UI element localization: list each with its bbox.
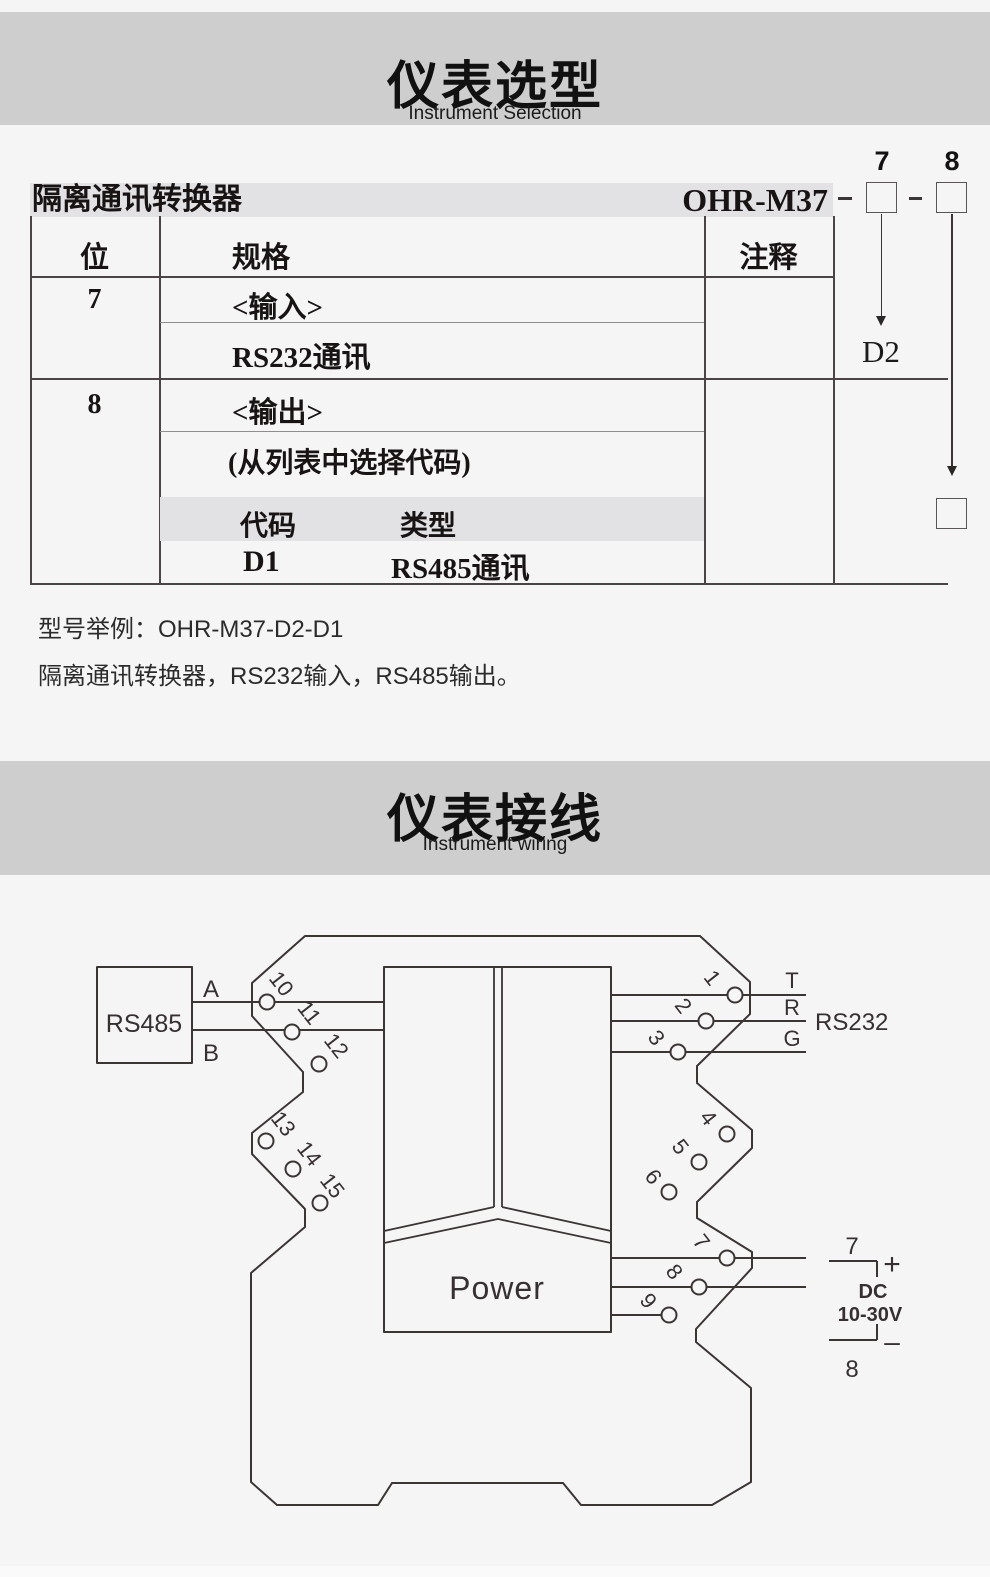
supply-minus: – (884, 1326, 900, 1357)
digit-8: 8 (937, 146, 967, 177)
product-name: 隔离通讯转换器 (32, 184, 242, 216)
col-header-pos: 位 (30, 234, 159, 276)
terminal-1 (728, 988, 743, 1003)
terminal-label-11: 11 (293, 996, 327, 1029)
example-desc-line: 隔离通讯转换器，RS232输入，RS485输出。 (38, 656, 521, 691)
terminal-label-14: 14 (292, 1136, 327, 1171)
rs485-box (97, 967, 192, 1063)
row7-spec-value: RS232通讯 (232, 334, 371, 376)
rs232-label: RS232 (815, 1009, 888, 1036)
bottom-strip (0, 1566, 990, 1577)
terminal-label-15: 15 (315, 1168, 350, 1203)
table-header-rule (30, 276, 834, 278)
arrow-line-7 (881, 214, 883, 318)
terminal-11 (285, 1025, 300, 1040)
converter-box (384, 967, 611, 1332)
terminal-15 (313, 1196, 328, 1211)
terminal-label-7: 7 (688, 1229, 715, 1254)
wire-g-label: G (783, 1026, 800, 1051)
type-col-header: 类型 (400, 504, 456, 544)
row8-spec-note: (从列表中选择代码) (228, 441, 471, 481)
table-border-right (833, 216, 835, 584)
section1-header-band: 仪表选型 Instrument Selection (0, 12, 990, 125)
output-code-box (936, 498, 967, 529)
terminal-label-8: 8 (661, 1259, 688, 1284)
wire-r-label: R (784, 995, 800, 1020)
wire-t-label: T (785, 968, 798, 993)
supply-dc-label: DC (859, 1281, 888, 1303)
row8-sub-rule (160, 431, 704, 432)
supply-bottom-num: 8 (845, 1356, 858, 1383)
col-header-spec: 规格 (232, 234, 290, 276)
col-header-note: 注释 (704, 234, 833, 276)
wire-b-label: B (203, 1040, 219, 1067)
terminal-7 (720, 1251, 735, 1266)
datasheet-page: 仪表选型 Instrument Selection 隔离通讯转换器 OHR-M3… (0, 0, 990, 1577)
arrow-line-8 (951, 214, 953, 468)
section2-header-band: 仪表接线 Instrument wiring (0, 761, 990, 875)
module-outline (251, 936, 752, 1505)
terminal-label-4: 4 (695, 1105, 722, 1130)
arrow-head-7-icon (876, 316, 886, 326)
terminal-label-5: 5 (667, 1134, 694, 1159)
terminal-8 (692, 1280, 707, 1295)
example-model-line: 型号举例：OHR-M37-D2-D1 (38, 609, 343, 644)
model-dash-2 (909, 197, 922, 200)
code-col-header: 代码 (240, 504, 296, 544)
terminal-label-6: 6 (640, 1164, 667, 1189)
section2-subtitle: Instrument wiring (0, 834, 990, 856)
row7-pos: 7 (30, 284, 159, 316)
terminal-label-2: 2 (670, 993, 697, 1018)
model-code-box-7 (866, 182, 897, 213)
code-d2: D2 (851, 334, 911, 370)
terminal-3 (671, 1045, 686, 1060)
terminal-label-12: 12 (319, 1028, 354, 1063)
model-dash-1 (838, 197, 852, 200)
terminal-14 (286, 1162, 301, 1177)
row8-spec-header: <输出> (232, 389, 323, 431)
terminal-9 (662, 1308, 677, 1323)
terminal-2 (699, 1014, 714, 1029)
terminal-10 (260, 995, 275, 1010)
arrow-head-8-icon (947, 466, 957, 476)
digit-7: 7 (867, 146, 897, 177)
terminal-label-10: 10 (264, 966, 299, 1001)
supply-plus: + (883, 1248, 901, 1281)
code-d1: D1 (243, 545, 280, 579)
terminal-6 (662, 1185, 677, 1200)
terminal-label-1: 1 (699, 965, 726, 990)
terminal-label-3: 3 (643, 1025, 670, 1050)
row7-spec-header: <输入> (232, 284, 323, 326)
terminal-label-9: 9 (635, 1288, 662, 1313)
supply-range-label: 10-30V (838, 1304, 903, 1326)
terminal-4 (720, 1127, 735, 1142)
wire-a-label: A (203, 976, 219, 1003)
model-code-box-8 (936, 182, 967, 213)
terminal-12 (312, 1057, 327, 1072)
terminal-label-13: 13 (266, 1106, 301, 1141)
power-label: Power (449, 1270, 545, 1306)
terminal-13 (259, 1134, 274, 1149)
rs485-label: RS485 (106, 1010, 182, 1038)
type-rs485: RS485通讯 (391, 545, 530, 587)
row-divider-7-8 (30, 378, 948, 380)
section1-subtitle: Instrument Selection (0, 103, 990, 125)
model-number: OHR-M37 (670, 183, 828, 217)
terminal-5 (692, 1155, 707, 1170)
supply-top-num: 7 (845, 1233, 858, 1260)
row8-pos: 8 (30, 389, 159, 421)
